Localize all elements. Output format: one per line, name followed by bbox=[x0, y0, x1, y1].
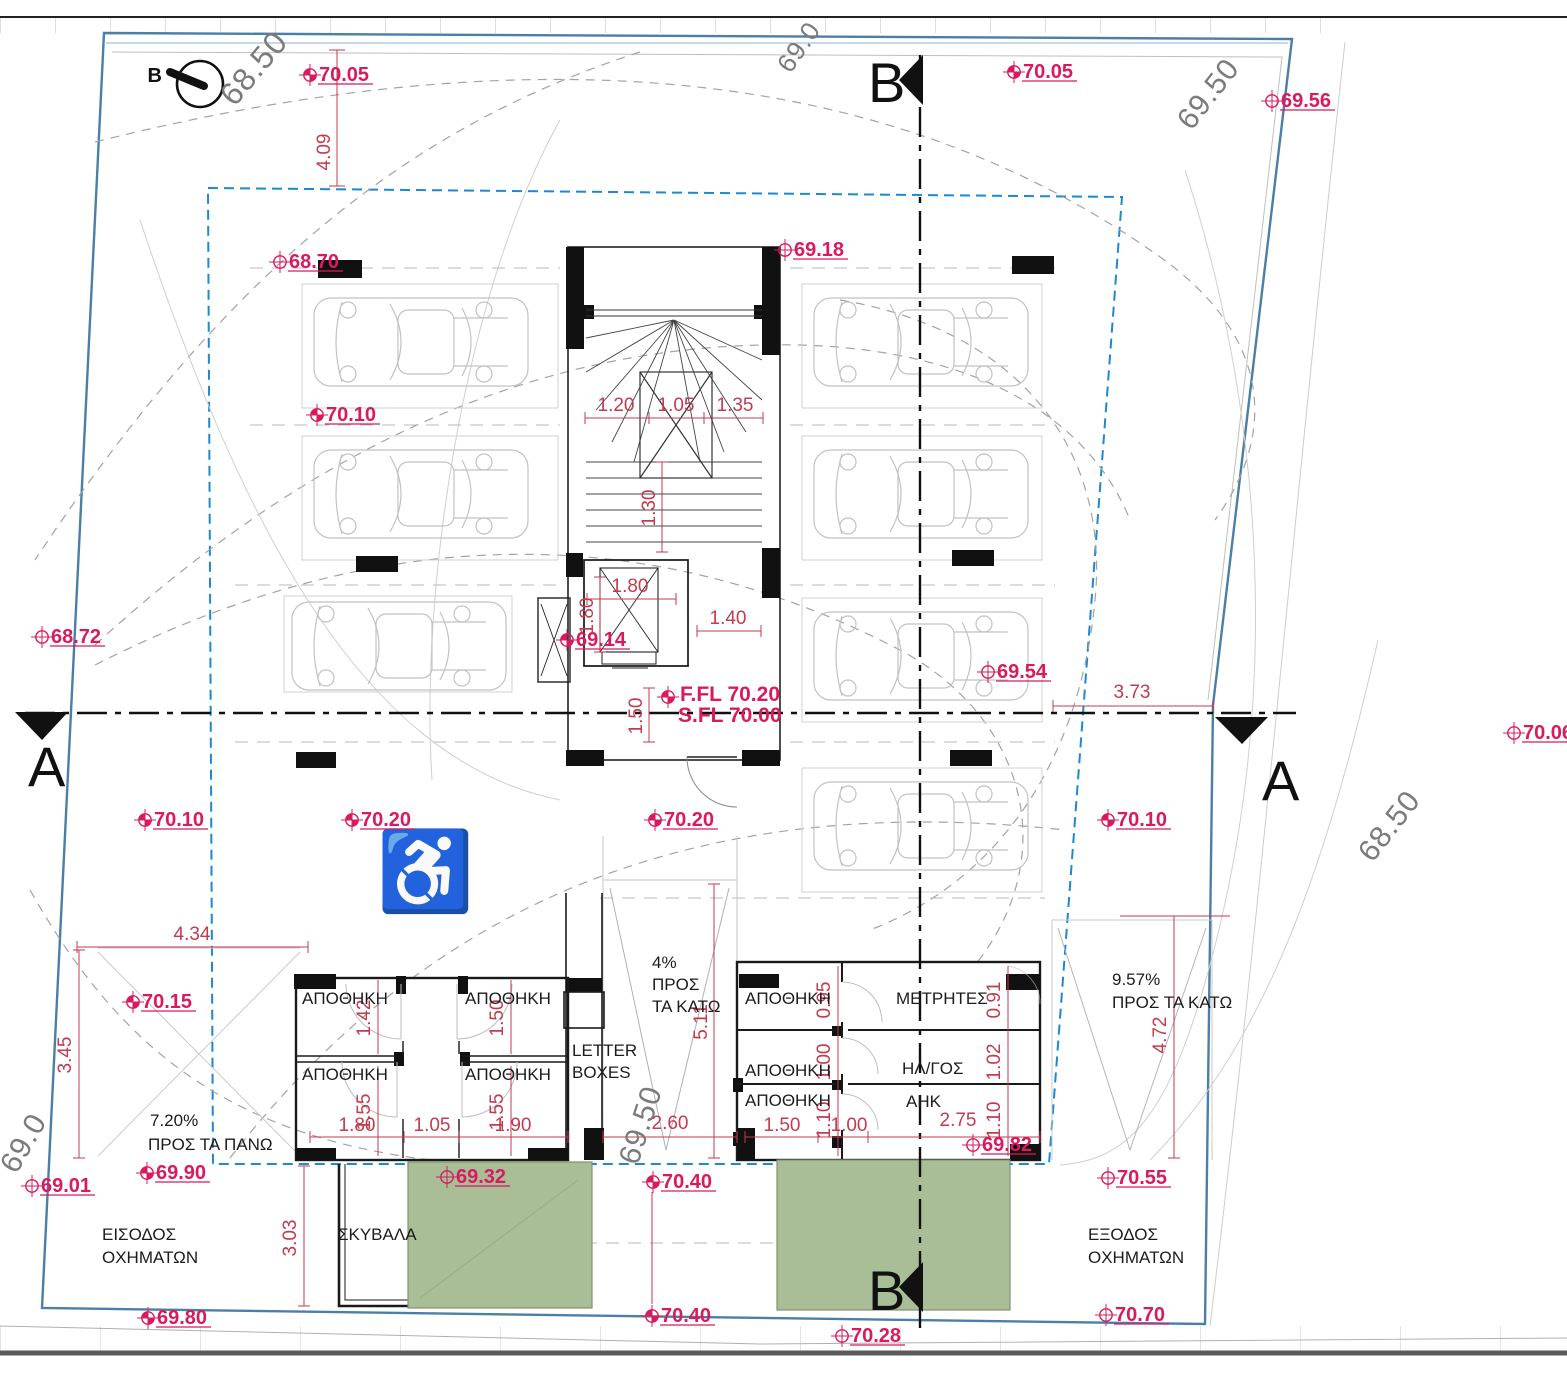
section-letter: A bbox=[1262, 749, 1300, 812]
site-boundary bbox=[42, 33, 1345, 1326]
dimension-value: 1.20 bbox=[598, 395, 635, 416]
spot-value: 70.06 bbox=[1523, 722, 1567, 744]
north-arrow: B bbox=[148, 61, 223, 107]
dimension-value: 1.02 bbox=[984, 1044, 1005, 1081]
spot-cross bbox=[21, 1175, 43, 1197]
stair-treads bbox=[586, 462, 762, 542]
room-label: ΗΛ/ΓΟΣ bbox=[902, 1059, 963, 1078]
contour-label: 68.50 bbox=[1352, 784, 1427, 867]
section-letter: B bbox=[868, 1259, 905, 1322]
room-label: ΑΠΟΘΗΚΗ bbox=[302, 1065, 388, 1084]
spot-level: 70.10 bbox=[1097, 809, 1171, 831]
room-label: ΑΠΟΘΗΚΗ bbox=[745, 989, 831, 1008]
spot-cross bbox=[134, 809, 156, 831]
site-plan-drawing: B F.FL 70.20 S.FL 70.00 ♿ 70.0570.0569.5… bbox=[0, 0, 1567, 1375]
spot-value: 70.40 bbox=[662, 1171, 712, 1193]
spot-cross bbox=[1003, 61, 1025, 83]
dimension-value: 1.50 bbox=[626, 698, 647, 735]
dimension-value: 1.80 bbox=[612, 576, 649, 597]
spot-level: 70.40 bbox=[641, 1305, 715, 1327]
dimension-value: 1.05 bbox=[414, 1115, 451, 1136]
finished-floor-level: F.FL 70.20 bbox=[680, 683, 780, 706]
spot-value: 70.10 bbox=[154, 809, 204, 831]
spot-cross bbox=[299, 64, 321, 86]
spot-value: 70.28 bbox=[851, 1325, 901, 1347]
dimension-value: 2.75 bbox=[940, 1110, 977, 1131]
parked-cars bbox=[292, 298, 1028, 870]
left-ramp bbox=[98, 948, 300, 1156]
spot-level: 68.70 bbox=[269, 251, 343, 273]
spot-level: 70.20 bbox=[341, 809, 415, 831]
spot-cross bbox=[1097, 809, 1119, 831]
parking-stalls bbox=[284, 284, 1042, 892]
spot-level: 70.06 bbox=[1503, 722, 1567, 744]
spot-level: 69.54 bbox=[977, 661, 1051, 683]
room-label: ΑΠΟΘΗΚΗ bbox=[745, 1061, 831, 1080]
room-label: ΑΠΟΘΗΚΗ bbox=[465, 989, 551, 1008]
dimension-value: 1.50 bbox=[764, 1115, 801, 1136]
note-label: BOXES bbox=[572, 1063, 631, 1082]
structural-floor-level: S.FL 70.00 bbox=[678, 704, 782, 727]
room-label: ΑΠΟΘΗΚΗ bbox=[302, 989, 388, 1008]
room-label: ΑΠΟΘΗΚΗ bbox=[465, 1065, 551, 1084]
note-label: LETTER bbox=[572, 1041, 637, 1060]
dimension-value: 4.09 bbox=[314, 134, 335, 171]
dimension-value: 4.34 bbox=[174, 924, 211, 945]
spot-level: 70.40 bbox=[642, 1171, 716, 1193]
note-label: ΠΡΟΣ ΤΑ ΠΑΝΩ bbox=[148, 1135, 273, 1154]
room-label: ΑΠΟΘΗΚΗ bbox=[745, 1091, 831, 1110]
spot-value: 70.10 bbox=[326, 404, 376, 426]
spot-level: 70.10 bbox=[306, 404, 380, 426]
dimension-value: 1.10 bbox=[984, 1102, 1005, 1139]
spot-value: 69.80 bbox=[157, 1307, 207, 1329]
spot-level: 70.70 bbox=[1095, 1304, 1169, 1326]
spot-level: 70.10 bbox=[134, 809, 208, 831]
spot-cross bbox=[556, 629, 578, 651]
dimension-texts: 4.091.201.051.351.301.801.801.401.503.73… bbox=[55, 134, 1171, 1257]
spot-cross bbox=[31, 626, 53, 648]
spot-level: 69.56 bbox=[1261, 90, 1335, 112]
spot-value: 69.56 bbox=[1281, 90, 1331, 112]
spot-value: 70.55 bbox=[1117, 1167, 1167, 1189]
contour-lines bbox=[30, 52, 1255, 1160]
dimension-value: 3.73 bbox=[1114, 682, 1151, 703]
spot-level: 69.18 bbox=[774, 239, 848, 261]
section-line-a bbox=[15, 712, 1296, 744]
spot-level: 69.90 bbox=[136, 1162, 210, 1184]
section-letter: B bbox=[868, 51, 905, 114]
dimension-value: 1.35 bbox=[717, 395, 754, 416]
room-label: ΑΗΚ bbox=[906, 1092, 942, 1111]
dimension-value: 1.80 bbox=[577, 598, 598, 635]
site-plan-canvas: B F.FL 70.20 S.FL 70.00 ♿ 70.0570.0569.5… bbox=[0, 0, 1567, 1375]
note-label: ΤΑ ΚΑΤΩ bbox=[652, 997, 720, 1016]
spot-level: 70.55 bbox=[1097, 1167, 1171, 1189]
spot-cross bbox=[644, 809, 666, 831]
parking-columns bbox=[296, 256, 1054, 768]
spot-level: 70.20 bbox=[644, 809, 718, 831]
contour-label: 68.50 bbox=[212, 24, 294, 112]
north-label: B bbox=[148, 65, 162, 87]
spot-level: 70.05 bbox=[299, 64, 373, 86]
letter-boxes bbox=[564, 893, 604, 1160]
dimension-value: 1.00 bbox=[831, 1115, 868, 1136]
spot-cross bbox=[641, 1305, 663, 1327]
note-label: 7.20% bbox=[150, 1111, 198, 1130]
spot-value: 69.54 bbox=[997, 661, 1048, 683]
section-arrow-a-right bbox=[1215, 717, 1268, 744]
note-label: 9.57% bbox=[1112, 970, 1160, 989]
spot-cross bbox=[1261, 90, 1283, 112]
note-labels: 4%ΠΡΟΣΤΑ ΚΑΤΩ9.57%ΠΡΟΣ ΤΑ ΚΑΤΩ7.20%ΠΡΟΣ … bbox=[102, 953, 1232, 1267]
dimension-value: 3.45 bbox=[55, 1037, 76, 1074]
spot-cross bbox=[341, 809, 363, 831]
note-label: ΕΞΟΔΟΣ bbox=[1088, 1225, 1158, 1244]
spot-value: 70.70 bbox=[1115, 1304, 1165, 1326]
note-label: ΟΧΗΜΑΤΩΝ bbox=[102, 1248, 198, 1267]
contour-label: 69.50 bbox=[1171, 52, 1246, 135]
spot-cross bbox=[306, 404, 328, 426]
note-label: ΣΚΥΒΑΛΑ bbox=[338, 1225, 417, 1244]
note-label: ΟΧΗΜΑΤΩΝ bbox=[1088, 1248, 1184, 1267]
spot-value: 69.18 bbox=[794, 239, 844, 261]
spot-value: 70.20 bbox=[361, 809, 411, 831]
spot-level: 70.15 bbox=[122, 991, 196, 1013]
spot-value: 70.05 bbox=[319, 64, 369, 86]
spot-value: 69.90 bbox=[156, 1162, 206, 1184]
entrance-door bbox=[687, 757, 737, 807]
spot-levels: 70.0570.0569.5668.7069.1870.1068.7269.14… bbox=[21, 61, 1567, 1347]
stair-winders bbox=[586, 320, 762, 462]
spot-value: 68.72 bbox=[51, 626, 101, 648]
spot-level: 70.28 bbox=[831, 1325, 905, 1347]
spot-level: 68.72 bbox=[31, 626, 105, 648]
note-label: ΠΡΟΣ ΤΑ ΚΑΤΩ bbox=[1112, 993, 1232, 1012]
dimension-value: 1.05 bbox=[658, 395, 695, 416]
dimension-value: 1.30 bbox=[639, 490, 660, 527]
room-label: ΜΕΤΡΗΤΕΣ bbox=[896, 989, 988, 1008]
dimension-value: 1.80 bbox=[339, 1115, 376, 1136]
road-top bbox=[0, 17, 1567, 33]
right-ramp bbox=[1052, 920, 1212, 1160]
spot-cross bbox=[642, 1171, 664, 1193]
spot-value: 69.32 bbox=[456, 1166, 506, 1188]
spot-value: 70.10 bbox=[1117, 809, 1167, 831]
spot-cross bbox=[136, 1162, 158, 1184]
spot-value: 69.01 bbox=[41, 1175, 91, 1197]
spot-value: 70.40 bbox=[661, 1305, 711, 1327]
spot-value: 70.15 bbox=[142, 991, 192, 1013]
road-bottom bbox=[0, 1326, 1567, 1353]
dimension-value: 1.40 bbox=[710, 608, 747, 629]
dimension-value: 1.90 bbox=[495, 1115, 532, 1136]
spot-cross bbox=[122, 991, 144, 1013]
dimension-value: 3.03 bbox=[280, 1220, 301, 1257]
floor-level-annotation: F.FL 70.20 S.FL 70.00 bbox=[657, 683, 782, 727]
dimension-value: 4.72 bbox=[1150, 1017, 1171, 1054]
spot-value: 68.70 bbox=[289, 251, 339, 273]
note-label: ΠΡΟΣ bbox=[652, 975, 699, 994]
spot-level: 69.80 bbox=[137, 1307, 211, 1329]
spot-value: 70.05 bbox=[1023, 61, 1073, 83]
spot-cross bbox=[269, 251, 291, 273]
spot-level: 69.01 bbox=[21, 1175, 95, 1197]
spot-level: 69.32 bbox=[436, 1166, 510, 1188]
spot-cross bbox=[1503, 722, 1525, 744]
note-label: ΕΙΣΟΔΟΣ bbox=[102, 1225, 176, 1244]
section-letter: A bbox=[28, 735, 66, 798]
contour-label: 69.0 bbox=[0, 1108, 54, 1179]
spot-cross bbox=[1097, 1167, 1119, 1189]
spot-level: 70.05 bbox=[1003, 61, 1077, 83]
note-label: 4% bbox=[652, 953, 677, 972]
wheelchair-icon: ♿ bbox=[376, 827, 473, 916]
spot-value: 70.20 bbox=[664, 809, 714, 831]
